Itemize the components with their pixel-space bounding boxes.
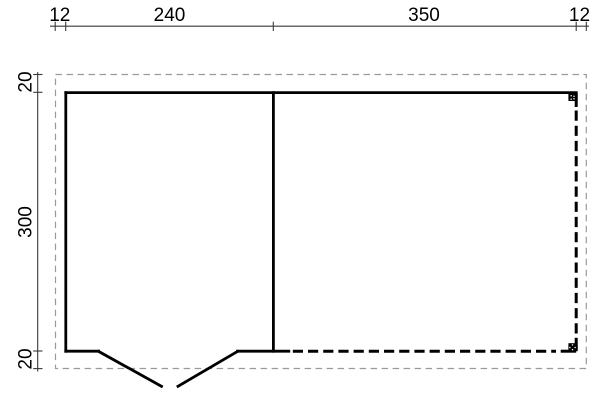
svg-text:12: 12 bbox=[569, 5, 590, 26]
svg-text:350: 350 bbox=[408, 5, 440, 26]
svg-text:20: 20 bbox=[16, 71, 37, 92]
svg-text:300: 300 bbox=[16, 206, 37, 238]
svg-text:240: 240 bbox=[154, 5, 186, 26]
svg-text:20: 20 bbox=[16, 348, 37, 369]
svg-text:12: 12 bbox=[49, 5, 70, 26]
